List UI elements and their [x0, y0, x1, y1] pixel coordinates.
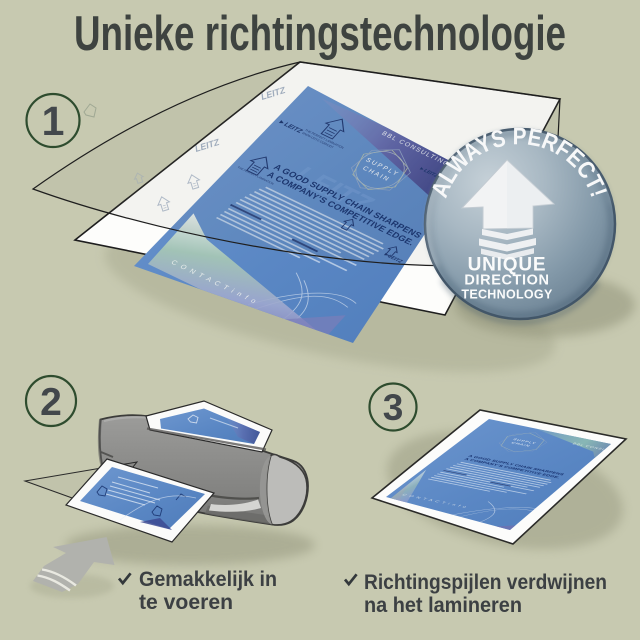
svg-text:Unieke richtingstechnologie: Unieke richtingstechnologie: [74, 7, 566, 61]
svg-text:1: 1: [42, 98, 65, 144]
svg-text:na het lamineren: na het lamineren: [364, 593, 522, 617]
svg-text:Gemakkelijk in: Gemakkelijk in: [139, 567, 277, 591]
svg-text:TECHNOLOGY: TECHNOLOGY: [461, 288, 553, 302]
svg-text:Richtingspijlen verdwijnen: Richtingspijlen verdwijnen: [364, 570, 607, 594]
svg-text:DIRECTION: DIRECTION: [464, 273, 549, 289]
svg-text:2: 2: [40, 381, 62, 424]
svg-text:3: 3: [383, 387, 404, 428]
svg-text:te voeren: te voeren: [139, 590, 233, 614]
